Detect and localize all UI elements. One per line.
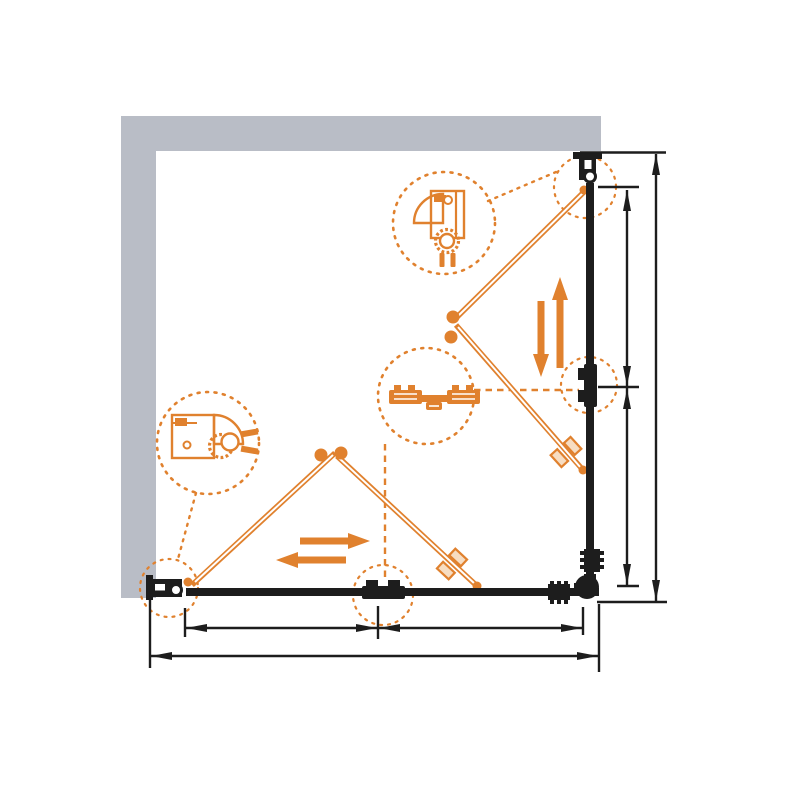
clamp-fitting-right-frame-rib [580, 565, 604, 569]
wall-bracket-bottom-left-slot [155, 584, 165, 591]
center-connector-icon-left-block [389, 390, 422, 404]
center-connector-icon-notch [466, 385, 473, 391]
hinge-pivot-bottom-left [171, 585, 182, 596]
door-fold-knuckle [315, 449, 328, 462]
corner-elbow-block-arm-horizontal [574, 583, 596, 595]
connector-bottom-frame-lug [388, 580, 400, 587]
dim-arrowhead [623, 564, 631, 585]
top-hinge-icon-leg-left [440, 253, 445, 267]
leader-line-left-callout [178, 493, 196, 559]
connector-bottom-frame-lug [366, 580, 378, 587]
left-hinge-icon-pivot [222, 434, 239, 451]
dim-arrowhead [151, 652, 172, 660]
dim-arrowhead [623, 366, 631, 386]
connector-bottom-frame-body [362, 586, 405, 599]
wall-bracket-top-right-slot [585, 160, 592, 169]
movement-arrow-right [300, 533, 370, 549]
top-hinge-icon-pivot [440, 234, 454, 248]
left-hinge-icon-prong-top [241, 428, 259, 437]
left-hinge-icon-block [175, 418, 187, 426]
dim-arrowhead [577, 652, 598, 660]
connector-right-frame-body [584, 364, 597, 407]
center-connector-icon-right-block [447, 390, 480, 404]
top-hinge-icon-leg-right [451, 253, 456, 267]
left-hinge-icon-prong-bottom [241, 446, 259, 455]
leader-line-top-callout [488, 172, 556, 201]
door-fold-knuckle [447, 311, 460, 324]
clamp-fitting-bottom-frame-rib [557, 581, 561, 604]
clamp-fitting-bottom-frame-rib [564, 581, 568, 604]
clamp-fitting-bottom-frame-rib [550, 581, 554, 604]
dim-arrowhead [652, 154, 660, 175]
dim-arrowhead [356, 624, 377, 632]
door-fold-knuckle [335, 447, 348, 460]
clamp-fitting-right-frame-rib [580, 551, 604, 555]
connector-right-frame-lug [578, 368, 585, 380]
center-connector-icon-notch [408, 385, 415, 391]
dim-arrowhead [623, 389, 631, 409]
dim-arrowhead [652, 580, 660, 601]
left-hinge-icon-screw [184, 442, 191, 449]
diagram-svg [0, 0, 800, 800]
door-fold-knuckle [445, 331, 458, 344]
center-connector-icon-notch [452, 385, 459, 391]
movement-arrow-down [533, 301, 549, 377]
movement-arrow-left [276, 552, 346, 568]
movement-arrow-up [552, 277, 568, 368]
wall-l-shape [121, 116, 601, 598]
door-panel-right-1-core [458, 188, 588, 316]
dim-arrowhead [623, 190, 631, 211]
dim-arrowhead [561, 624, 582, 632]
center-connector-icon-notch [394, 385, 401, 391]
shower-enclosure-technical-diagram [0, 0, 800, 800]
hinge-pivot-top-right [585, 171, 596, 182]
dim-arrowhead [186, 624, 207, 632]
connector-right-frame-lug [578, 390, 585, 402]
center-connector-icon-link [420, 395, 449, 402]
door-pivot-blob-bottom-left [184, 578, 193, 587]
top-hinge-icon-screw [444, 196, 452, 204]
door-panel-left-2-core [339, 458, 475, 584]
clamp-fitting-right-frame-rib [580, 558, 604, 562]
